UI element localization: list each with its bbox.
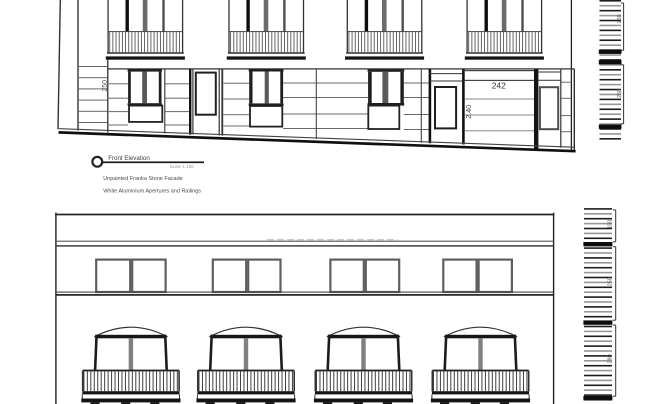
- svg-text:260: 260: [617, 14, 623, 23]
- svg-text:250: 250: [617, 89, 623, 98]
- svg-text:White Aluminium Apertures and: White Aluminium Apertures and Railings: [103, 189, 201, 195]
- svg-text:150: 150: [608, 220, 614, 229]
- svg-text:250: 250: [608, 277, 614, 286]
- svg-text:2.40: 2.40: [464, 105, 473, 119]
- svg-text:Unpainted Franka Stone Facade: Unpainted Franka Stone Facade: [103, 176, 183, 182]
- svg-text:242: 242: [492, 81, 506, 91]
- svg-text:280: 280: [608, 354, 614, 363]
- svg-text:Front Elevation: Front Elevation: [108, 155, 150, 162]
- svg-text:Scale 1:100: Scale 1:100: [170, 164, 195, 169]
- svg-text:250: 250: [102, 80, 109, 92]
